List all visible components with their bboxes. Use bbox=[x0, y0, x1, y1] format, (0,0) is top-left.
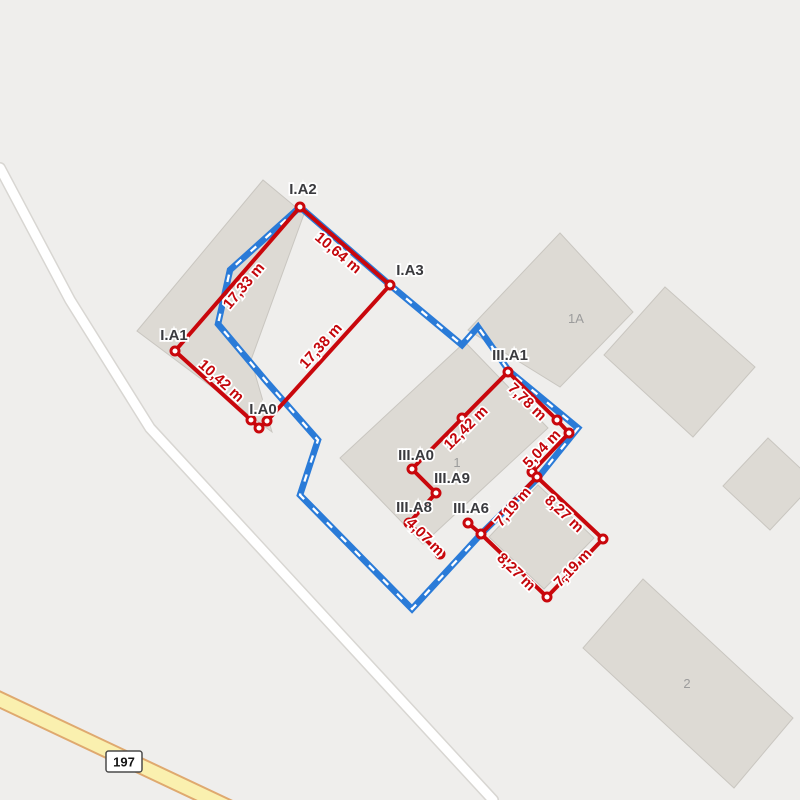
point-label-III.A0: III.A0 bbox=[398, 447, 434, 464]
measure-point-III.A1[interactable] bbox=[504, 368, 512, 376]
point-label-I.A3: I.A3 bbox=[396, 262, 424, 279]
measure-point-I.A0[interactable] bbox=[255, 424, 263, 432]
measure-point-I.A2[interactable] bbox=[296, 203, 304, 211]
road-ref-badge: 197 bbox=[106, 751, 142, 772]
building-label-1A: 1A bbox=[568, 311, 584, 326]
measure-point-I.A1[interactable] bbox=[171, 347, 179, 355]
point-label-I.A1: I.A1 bbox=[160, 327, 188, 344]
building-label-2: 2 bbox=[683, 676, 690, 691]
map-canvas[interactable]: 1A1217,33 m10,64 m17,38 m10,42 m12,42 m7… bbox=[0, 0, 800, 800]
measure-point[interactable] bbox=[477, 530, 485, 538]
measure-point[interactable] bbox=[533, 473, 541, 481]
point-label-I.A2: I.A2 bbox=[289, 181, 317, 198]
map-view: 1A1217,33 m10,64 m17,38 m10,42 m12,42 m7… bbox=[0, 0, 800, 800]
point-label-III.A9: III.A9 bbox=[434, 470, 470, 487]
measure-point[interactable] bbox=[543, 593, 551, 601]
measure-point[interactable] bbox=[263, 417, 271, 425]
measure-point[interactable] bbox=[599, 535, 607, 543]
building-label-1: 1 bbox=[453, 455, 460, 470]
measure-point-III.A6[interactable] bbox=[464, 519, 472, 527]
road-ref-badge-text: 197 bbox=[113, 755, 135, 770]
point-label-I.A0: I.A0 bbox=[249, 401, 277, 418]
point-label-III.A1: III.A1 bbox=[492, 347, 528, 364]
measure-point[interactable] bbox=[565, 429, 573, 437]
measure-point[interactable] bbox=[553, 416, 561, 424]
point-label-III.A6: III.A6 bbox=[453, 500, 489, 517]
point-label-III.A8: III.A8 bbox=[396, 499, 432, 516]
measure-point-III.A0[interactable] bbox=[408, 465, 416, 473]
measure-point-I.A3[interactable] bbox=[386, 281, 394, 289]
measure-point-III.A9[interactable] bbox=[432, 489, 440, 497]
